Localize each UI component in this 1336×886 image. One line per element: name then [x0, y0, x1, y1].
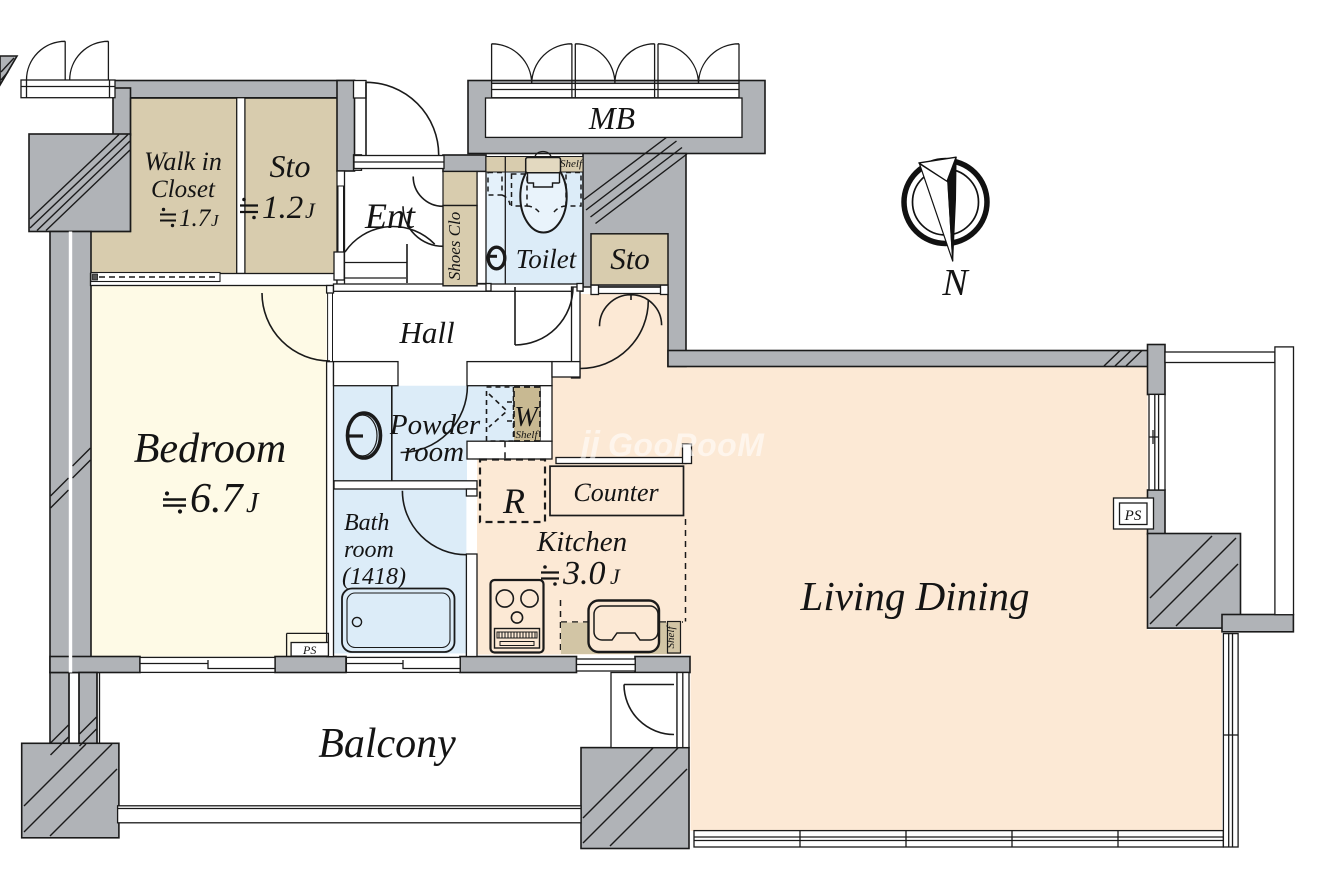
svg-text:Walk in: Walk in [144, 147, 222, 176]
svg-text:Bath: Bath [344, 510, 389, 536]
svg-text:PS: PS [302, 643, 316, 657]
svg-text:Toilet: Toilet [516, 244, 578, 274]
svg-text:3.0: 3.0 [562, 555, 606, 592]
svg-text:Sto: Sto [270, 148, 311, 184]
svg-text:Sto: Sto [610, 241, 650, 276]
svg-text:Bedroom: Bedroom [134, 426, 286, 472]
svg-text:GooRooM: GooRooM [608, 427, 765, 463]
svg-text:Ent: Ent [364, 196, 416, 236]
svg-text:1.2: 1.2 [262, 190, 303, 226]
svg-text:J: J [305, 198, 316, 223]
svg-text:PS: PS [1124, 508, 1142, 524]
svg-text:Hall: Hall [398, 315, 454, 350]
svg-text:room: room [404, 436, 464, 468]
svg-text:J: J [246, 488, 260, 519]
svg-text:MB: MB [588, 100, 635, 136]
svg-text:Balcony: Balcony [318, 721, 456, 767]
svg-text:R: R [502, 481, 525, 521]
svg-text:Kitchen: Kitchen [536, 526, 627, 558]
svg-text:Shelf: Shelf [560, 158, 584, 170]
svg-text:Shelf: Shelf [665, 625, 677, 649]
svg-text:(1418): (1418) [342, 564, 406, 590]
svg-text:J: J [610, 564, 621, 589]
svg-text:room: room [344, 537, 394, 563]
svg-text:Closet: Closet [151, 176, 216, 203]
svg-text:Shelf: Shelf [516, 429, 540, 441]
svg-text:6.7: 6.7 [190, 476, 245, 522]
svg-text:Living Dining: Living Dining [800, 573, 1030, 619]
svg-text:N: N [941, 262, 970, 304]
svg-text:Shoes Clo: Shoes Clo [445, 212, 464, 280]
svg-text:1.7: 1.7 [179, 205, 212, 232]
svg-text:jj: jj [577, 425, 601, 463]
svg-text:Counter: Counter [573, 478, 659, 507]
